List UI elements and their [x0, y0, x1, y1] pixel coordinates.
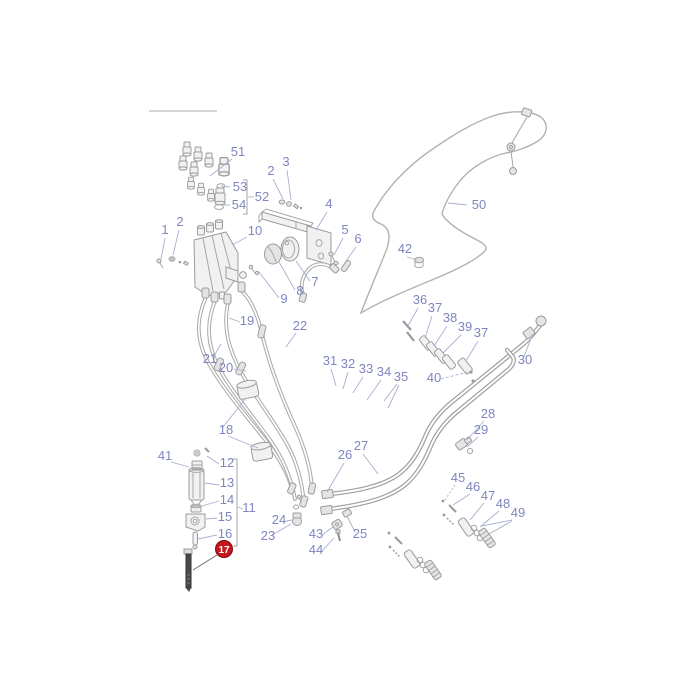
part-label-21[interactable]: 21: [203, 351, 217, 366]
highlight-badge-17[interactable]: 17: [216, 541, 233, 558]
part-label-9[interactable]: 9: [280, 291, 287, 306]
part-label-45[interactable]: 45: [451, 470, 465, 485]
part-label-51[interactable]: 51: [231, 144, 245, 159]
fasteners-1-2: [157, 257, 188, 268]
parts-diagram-canvas: 1 2 2 3 4 5 6 7 8 9 10 11 12 13 14 15 16…: [0, 0, 700, 700]
part-label-22[interactable]: 22: [293, 318, 307, 333]
part-label-7[interactable]: 7: [311, 274, 318, 289]
part-label-54[interactable]: 54: [232, 197, 246, 212]
part-label-48[interactable]: 48: [496, 496, 510, 511]
part-label-16[interactable]: 16: [218, 526, 232, 541]
part-label-10[interactable]: 10: [248, 223, 262, 238]
part-label-30[interactable]: 30: [518, 352, 532, 367]
highlight-leader-17: [193, 555, 217, 570]
part-label-31[interactable]: 31: [323, 353, 337, 368]
artwork: [149, 108, 546, 592]
part-label-15[interactable]: 15: [218, 509, 232, 524]
pipe-end-nut: [321, 505, 333, 514]
pipe-ball-end: [536, 316, 546, 326]
part-label-52[interactable]: 52: [255, 189, 269, 204]
hardware-cluster-b: [388, 532, 442, 581]
cap-8: [265, 244, 282, 264]
part-label-17[interactable]: 17: [218, 545, 230, 556]
part-label-12[interactable]: 12: [220, 455, 234, 470]
part-label-37-upper[interactable]: 37: [428, 300, 442, 315]
clamp-43-44-25: [331, 508, 352, 541]
part-label-35[interactable]: 35: [394, 369, 408, 384]
grommet-42: [415, 257, 424, 267]
part-label-2-left[interactable]: 2: [176, 214, 183, 229]
part-label-41[interactable]: 41: [158, 448, 172, 463]
bolt-17: [184, 549, 192, 592]
part-label-3[interactable]: 3: [282, 154, 289, 169]
part-label-8[interactable]: 8: [296, 283, 303, 298]
part-label-11[interactable]: 11: [242, 500, 256, 515]
part-label-4[interactable]: 4: [325, 196, 332, 211]
part-label-2-right[interactable]: 2: [267, 163, 274, 178]
part-label-39[interactable]: 39: [458, 319, 472, 334]
part-label-1[interactable]: 1: [161, 222, 168, 237]
elbow-hose: [299, 263, 340, 303]
pipe-nut-30: [523, 327, 536, 339]
harness-clip: [507, 108, 532, 175]
part-label-42[interactable]: 42: [398, 241, 412, 256]
part-label-13[interactable]: 13: [220, 475, 234, 490]
o-ring-54: [215, 205, 224, 210]
part-label-27[interactable]: 27: [354, 438, 368, 453]
part-label-36[interactable]: 36: [413, 292, 427, 307]
hardware-cluster-a: [442, 500, 496, 549]
part-label-24[interactable]: 24: [272, 512, 286, 527]
part-label-49[interactable]: 49: [511, 505, 525, 520]
part-label-34[interactable]: 34: [377, 364, 391, 379]
part-label-20[interactable]: 20: [219, 360, 233, 375]
part-label-43[interactable]: 43: [309, 526, 323, 541]
part-label-18[interactable]: 18: [219, 422, 233, 437]
part-label-47[interactable]: 47: [481, 488, 495, 503]
part-label-44[interactable]: 44: [309, 542, 323, 557]
seat-pan-outline: [361, 108, 546, 313]
part-label-14[interactable]: 14: [220, 492, 234, 507]
part-labels: 1 2 2 3 4 5 6 7 8 9 10 11 12 13 14 15 16…: [158, 144, 532, 558]
part-label-28[interactable]: 28: [481, 406, 495, 421]
part-label-40[interactable]: 40: [427, 370, 441, 385]
part-label-32[interactable]: 32: [341, 356, 355, 371]
part-label-26[interactable]: 26: [338, 447, 352, 462]
part-label-29[interactable]: 29: [474, 422, 488, 437]
adapter-52: [215, 188, 225, 205]
part-label-25[interactable]: 25: [353, 526, 367, 541]
part-label-6[interactable]: 6: [354, 231, 361, 246]
part-label-53[interactable]: 53: [233, 179, 247, 194]
part-label-38[interactable]: 38: [443, 310, 457, 325]
bracket-screws: [279, 200, 302, 209]
part-label-46[interactable]: 46: [466, 479, 480, 494]
part-label-23[interactable]: 23: [261, 528, 275, 543]
part-label-37-lower[interactable]: 37: [474, 325, 488, 340]
part-label-19[interactable]: 19: [240, 313, 254, 328]
part-label-33[interactable]: 33: [359, 361, 373, 376]
part-label-50[interactable]: 50: [472, 197, 486, 212]
part-label-5[interactable]: 5: [341, 222, 348, 237]
